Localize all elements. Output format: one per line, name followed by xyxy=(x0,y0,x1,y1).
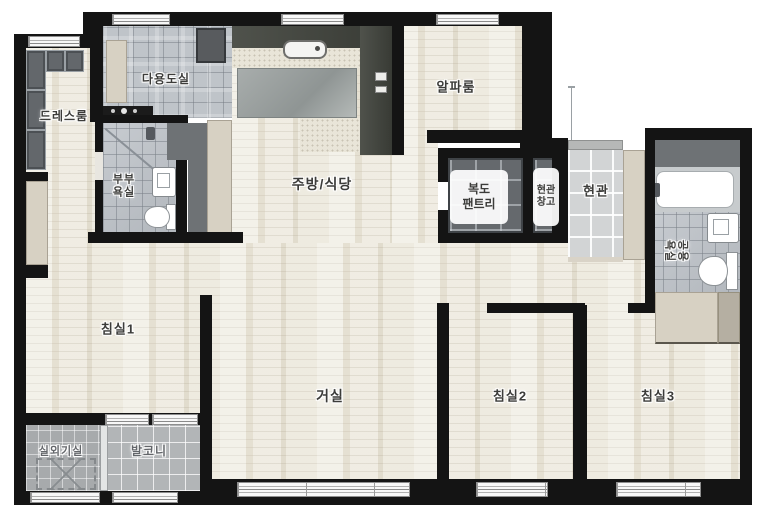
room-label-kitchen-dining: 주방/식당 xyxy=(292,176,352,192)
wall xyxy=(26,265,48,278)
toilet xyxy=(698,256,728,286)
wall xyxy=(437,303,449,497)
room-label-entry-storage: 현관 창고 xyxy=(533,168,559,226)
wall xyxy=(90,26,103,122)
bathtub xyxy=(650,167,740,212)
kitchen-tall-cabinet xyxy=(207,120,232,238)
wardrobe xyxy=(46,50,65,72)
wall xyxy=(26,172,48,181)
cooktop xyxy=(375,72,387,81)
window xyxy=(28,36,80,47)
room-label-bedroom3: 침실3 xyxy=(641,390,675,405)
room-label-common-bath-line1: 공용 xyxy=(676,240,689,262)
utility-cabinet xyxy=(106,40,127,103)
wall xyxy=(438,148,448,182)
wall xyxy=(740,128,752,505)
wall xyxy=(95,115,188,123)
kitchen-faucet xyxy=(315,46,320,51)
window xyxy=(152,414,198,425)
wardrobe xyxy=(26,130,46,170)
washbasin-bowl xyxy=(157,173,170,188)
entrance-threshold xyxy=(568,257,623,262)
washbasin xyxy=(707,213,739,243)
room-label-common-bath-line2: 욕실 xyxy=(663,240,676,262)
toilet xyxy=(144,206,170,228)
utility-counter-knob xyxy=(121,108,127,114)
front-door xyxy=(568,140,623,150)
bath-door xyxy=(95,152,103,180)
bedroom3-closet xyxy=(718,292,740,344)
wall xyxy=(487,303,585,313)
wall xyxy=(200,295,212,505)
dining-table xyxy=(237,68,357,118)
wall xyxy=(523,148,533,243)
window xyxy=(616,482,701,497)
wall xyxy=(14,413,105,425)
room-label-common-bath: 공용 욕실 xyxy=(663,240,688,262)
window xyxy=(281,14,344,25)
room-label-alpha-room: 알파룸 xyxy=(437,81,476,96)
shoe-cabinet xyxy=(623,150,645,260)
room-label-outdoor-unit-room: 실외기실 xyxy=(39,446,83,459)
window xyxy=(436,14,499,25)
window xyxy=(105,414,149,425)
balcony-divider xyxy=(100,425,108,491)
room-label-hallway-pantry-line2: 팬트리 xyxy=(462,197,495,212)
kitchen-sink xyxy=(283,40,327,59)
washbasin xyxy=(152,167,176,197)
room-label-entry-storage-line1: 현관 xyxy=(537,185,555,198)
window xyxy=(237,482,410,497)
washbasin-bowl xyxy=(713,219,729,235)
cooktop xyxy=(375,86,387,93)
floor-hall xyxy=(392,143,438,243)
bath-upper-cabinet xyxy=(650,140,740,168)
dimension-line xyxy=(571,88,572,140)
shower-head xyxy=(146,127,155,140)
utility-counter-knob xyxy=(111,109,115,113)
washer xyxy=(196,28,226,63)
bath-storage-strip xyxy=(188,123,207,238)
wardrobe xyxy=(65,50,84,72)
wall xyxy=(438,210,448,243)
room-label-entry-storage-line2: 창고 xyxy=(537,197,555,210)
wall xyxy=(438,148,568,158)
room-label-utility: 다용도실 xyxy=(142,73,190,87)
window xyxy=(476,482,548,497)
floor-entrance-tiles xyxy=(568,150,623,260)
wardrobe xyxy=(26,50,46,90)
room-label-balcony: 발코니 xyxy=(131,445,167,459)
wall xyxy=(392,26,404,155)
bathtub-inner xyxy=(656,171,734,208)
room-label-hallway-pantry: 복도 팬트리 xyxy=(450,170,508,224)
room-label-dressroom: 드레스룸 xyxy=(40,110,88,124)
room-label-hallway-pantry-line1: 복도 xyxy=(468,182,490,197)
wall xyxy=(645,140,655,312)
wall xyxy=(628,303,655,313)
wall xyxy=(438,233,568,243)
floorplan: 드레스룸 다용도실 부부 욕실 주방/식당 알파룸 복도 팬트리 현관 창고 현… xyxy=(0,0,758,512)
room-label-living-room: 거실 xyxy=(316,388,344,404)
room-label-bedroom1: 침실1 xyxy=(101,323,135,338)
room-label-entrance: 현관 xyxy=(583,185,609,200)
window xyxy=(30,492,100,503)
wall xyxy=(573,305,587,483)
closet-cabinet xyxy=(26,181,48,265)
utility-counter-knob xyxy=(133,109,137,113)
room-label-master-bath-line1: 부부 xyxy=(113,173,135,186)
window xyxy=(112,14,170,25)
wall xyxy=(427,130,552,143)
kitchen-countertop xyxy=(300,118,360,152)
room-label-master-bath-line2: 욕실 xyxy=(113,186,135,199)
room-label-bedroom2: 침실2 xyxy=(493,390,527,405)
window xyxy=(112,492,178,503)
wall xyxy=(176,160,187,243)
wall xyxy=(88,232,243,243)
wall xyxy=(95,115,103,152)
ac-outdoor-unit xyxy=(36,458,96,490)
dimension-tick xyxy=(568,86,575,88)
room-label-master-bath: 부부 욕실 xyxy=(113,173,135,198)
wall xyxy=(14,34,26,505)
bedroom3-closet xyxy=(655,292,718,344)
wall xyxy=(645,128,752,140)
